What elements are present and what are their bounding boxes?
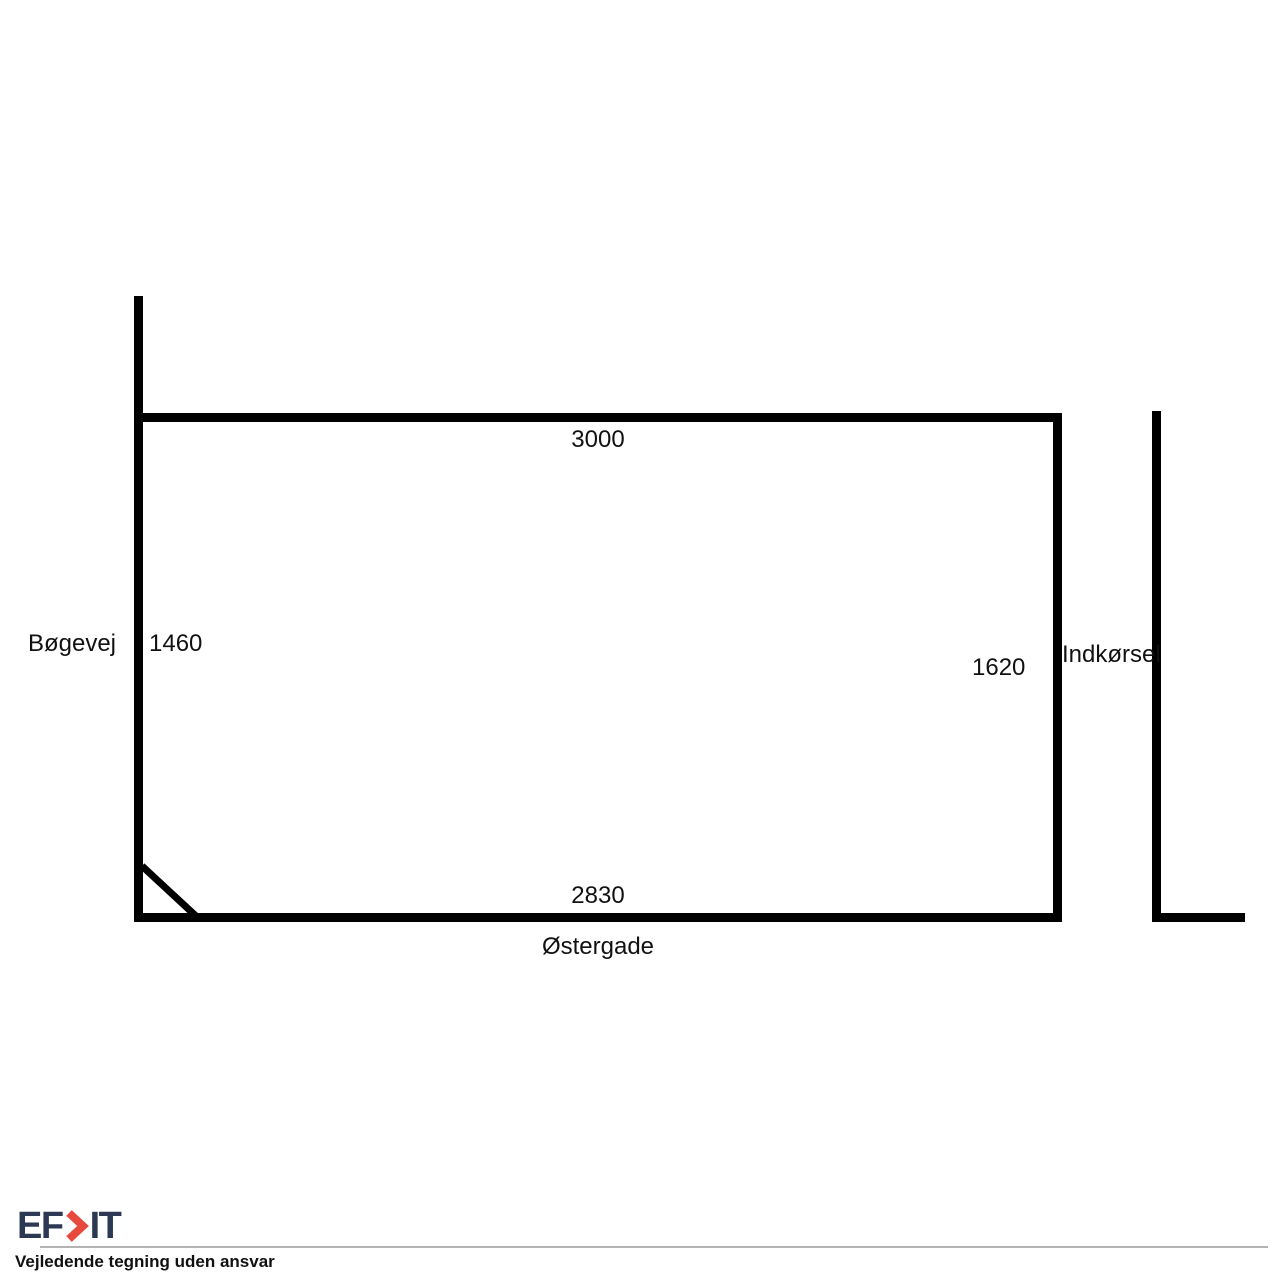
plot-drawing-canvas: 3000 1460 1620 2830 Bøgevej Østergade In… [0,0,1280,1280]
dimension-right: 1620 [972,654,1025,682]
logo-text-right: IT [90,1205,121,1248]
street-label-bogevej: Bøgevej [20,630,116,658]
street-label-ostergade: Østergade [134,933,1062,961]
footer-divider [40,1246,1268,1248]
driveway-label-indkorsel: Indkørsel [1062,641,1161,669]
fence-top-line [134,413,1062,422]
logo-text-left: EF [17,1205,63,1248]
dimension-top: 3000 [134,426,1062,454]
disclaimer-text: Vejledende tegning uden ansvar [15,1252,275,1272]
left-boundary-line [134,296,143,922]
logo-chevron-icon [65,1209,89,1243]
fence-bottom-line [134,913,1062,922]
efit-logo: EF IT [17,1206,120,1246]
fence-right-line [1053,413,1062,922]
dimension-left: 1460 [149,630,202,658]
driveway-bottom-line [1152,913,1245,922]
dimension-bottom: 2830 [134,882,1062,910]
